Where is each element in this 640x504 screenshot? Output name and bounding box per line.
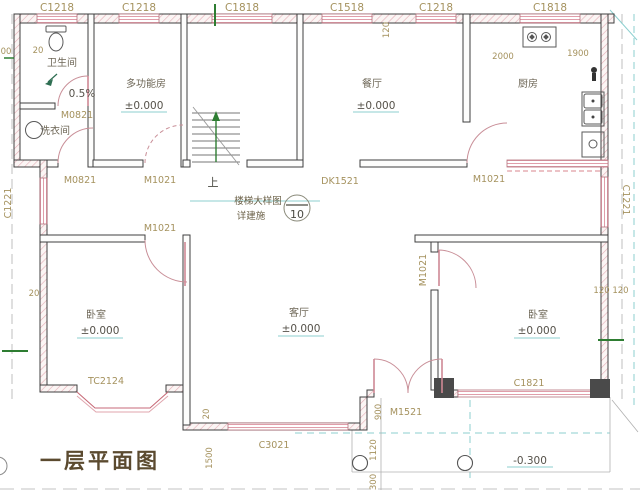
window-labels: C1218 C1218 C1818 C1518 C1218 C1818 C122… — [3, 2, 631, 451]
stair-detail-number: 10 — [290, 208, 304, 221]
dim-label: 00 — [1, 47, 12, 57]
porch-elevation: -0.300 — [513, 455, 547, 467]
window-label: C1218 — [40, 2, 74, 14]
dim-label: 300 — [369, 474, 379, 490]
porch-column — [353, 456, 368, 471]
window-label: C1818 — [533, 2, 567, 14]
stair-note: 楼梯大样图 — [234, 195, 282, 207]
interior-walls — [20, 14, 610, 425]
window-label-right: C1221 — [620, 185, 631, 216]
room-name: 卫生间 — [47, 56, 77, 69]
floor-plan-canvas: C1218 C1218 C1818 C1518 C1218 C1818 C122… — [0, 0, 640, 504]
door-label: M1021 — [418, 254, 429, 286]
slope-label: 0.5% — [69, 88, 96, 100]
door-label: M1021 — [144, 223, 176, 234]
toilet-icon — [46, 26, 66, 32]
staircase — [192, 107, 240, 165]
exterior-walls — [14, 14, 614, 430]
toilet-bowl-icon — [49, 33, 63, 51]
room-elevation: ±0.000 — [81, 325, 120, 337]
window-label: C1518 — [330, 2, 364, 14]
window-label: C1818 — [225, 2, 259, 14]
stair-up-label: 上 — [208, 176, 219, 189]
door-label: M1021 — [144, 175, 176, 186]
dim-label: 20 — [33, 46, 44, 56]
fixtures — [26, 26, 605, 471]
dim-label: 120 — [382, 22, 392, 38]
room-name: 卧室 — [528, 308, 548, 321]
window-bands — [37, 14, 608, 430]
door-label: M0821 — [64, 175, 96, 186]
column — [590, 379, 610, 398]
window-label: C1218 — [122, 2, 156, 14]
room-elevation: ±0.000 — [125, 100, 164, 112]
elevation-underlines — [77, 112, 560, 467]
door-label: M1521 — [390, 407, 422, 418]
dim-label: 120 120 — [593, 286, 628, 296]
room-name: 厨房 — [518, 77, 538, 90]
room-name: 客厅 — [289, 306, 309, 319]
slope-arrow — [48, 74, 57, 82]
floor-plan-page: C1218 C1218 C1818 C1518 C1218 C1818 C122… — [0, 0, 640, 504]
drawing-title: 一层平面图 — [40, 449, 160, 473]
window-label: C3021 — [259, 440, 290, 451]
bay-window-label: TC2124 — [87, 376, 124, 387]
dim-label: 2000 — [492, 52, 514, 62]
dim-label: 20 — [29, 289, 40, 299]
room-name: 多功能房 — [126, 77, 166, 90]
window-label: C1821 — [514, 378, 545, 389]
door-label: M0821 — [61, 110, 93, 121]
faucet-icon — [591, 67, 597, 73]
construction-lines — [0, 10, 640, 490]
porch-column — [458, 456, 473, 471]
door-label: M1021 — [473, 174, 505, 185]
door-label: DK1521 — [321, 176, 359, 187]
dim-label: 1500 — [205, 447, 215, 469]
column — [434, 378, 454, 398]
dim-label: 1900 — [567, 49, 589, 59]
room-name: 卧室 — [86, 308, 106, 321]
stair-labels: 上 楼梯大样图 详建施 10 — [208, 176, 305, 222]
room-name: 洗衣间 — [40, 124, 70, 137]
room-elevation: ±0.000 — [518, 325, 557, 337]
room-elevation: ±0.000 — [282, 323, 321, 335]
dim-label: 1120 — [369, 439, 379, 461]
room-name: 餐厅 — [362, 77, 382, 90]
room-elevation: ±0.000 — [357, 100, 396, 112]
stair-note: 详建施 — [237, 210, 266, 222]
window-label: C1218 — [419, 2, 453, 14]
dim-label: 20 — [202, 409, 212, 420]
window-label-left: C1221 — [3, 188, 14, 219]
dim-label: 900 — [374, 404, 384, 420]
